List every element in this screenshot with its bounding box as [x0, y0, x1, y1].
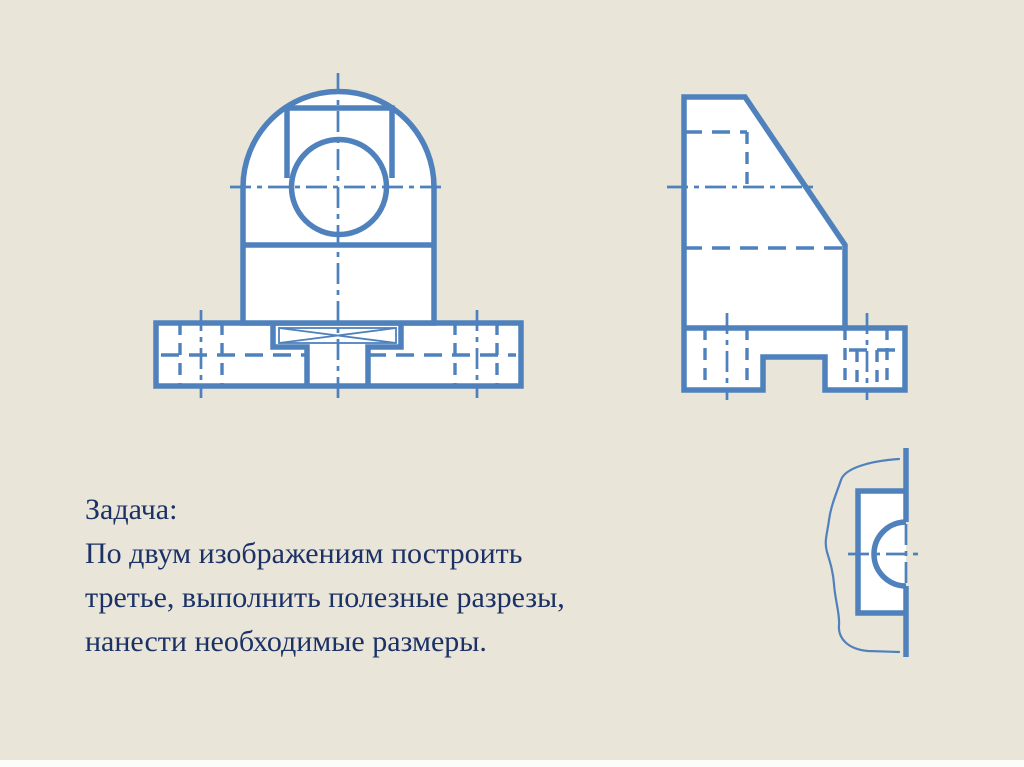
- task-line-3: нанести необходимые размеры.: [85, 620, 645, 664]
- front-view: [156, 73, 521, 404]
- slide-bottom-strip: [0, 760, 1024, 767]
- task-text-block: Задача: По двум изображениям построить т…: [85, 488, 645, 664]
- presentation-slide: Задача: По двум изображениям построить т…: [0, 0, 1024, 767]
- side-outline: [684, 97, 905, 390]
- task-line-2: третье, выполнить полезные разрезы,: [85, 576, 645, 620]
- task-line-1: По двум изображениям построить: [85, 532, 645, 576]
- task-title: Задача:: [85, 488, 645, 532]
- side-view: [667, 97, 905, 400]
- partial-pocket-fill: [858, 491, 906, 613]
- partial-section-view: [826, 448, 923, 657]
